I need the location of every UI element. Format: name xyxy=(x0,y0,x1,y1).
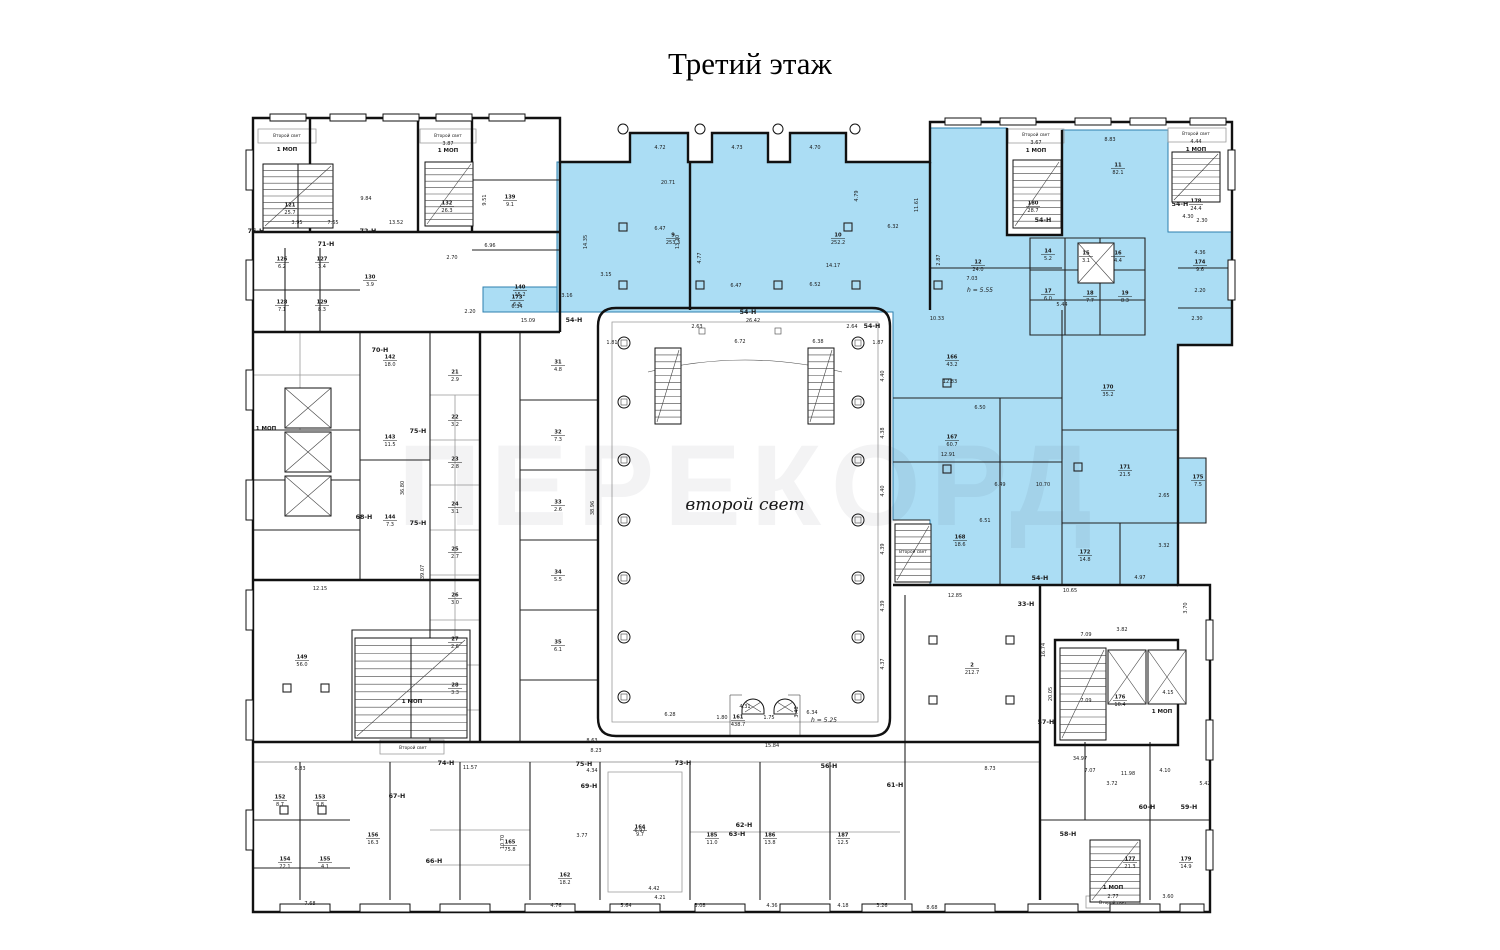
section-label: 74-Н xyxy=(438,760,455,767)
dimension-label: 2.77 xyxy=(1107,894,1118,900)
room-area: 5.2 xyxy=(1044,256,1052,262)
window-tick xyxy=(1228,150,1235,190)
service-label: 1 МОП xyxy=(402,699,423,705)
dimension-label: 4.70 xyxy=(809,145,820,151)
room-number: 22 xyxy=(451,415,459,421)
floor-plan-drawing: 4.724.734.7020.716.476.476.526.3214.174.… xyxy=(0,0,1500,950)
room-number: 15 xyxy=(1082,251,1090,257)
section-label: 69-Н xyxy=(581,783,598,790)
room-number: 154 xyxy=(280,857,291,863)
section-label: 66-Н xyxy=(426,858,443,865)
room-area: 24.4 xyxy=(1190,206,1201,212)
dimension-label: 4.31 xyxy=(739,704,750,710)
dimension-label: 3.77 xyxy=(576,833,587,839)
window-tick xyxy=(1206,620,1213,660)
room-area: 4.1 xyxy=(321,864,329,870)
dimension-label: 3.48 xyxy=(794,706,800,717)
window-tick xyxy=(1228,260,1235,300)
service-label: Второй свет xyxy=(1022,131,1050,138)
room-number: 16 xyxy=(1114,251,1122,257)
room-number: 149 xyxy=(297,655,308,661)
section-label: 58-Н xyxy=(1060,831,1077,838)
dimension-label: 11.61 xyxy=(914,198,920,212)
window-tick xyxy=(610,904,660,912)
dimension-label: 4.76 xyxy=(550,903,561,909)
room-number: 174 xyxy=(1195,260,1206,266)
dimension-label: 8.23 xyxy=(590,748,601,754)
window-tick xyxy=(1075,118,1111,125)
dimension-label: 8.63 xyxy=(586,738,597,744)
atrium-column xyxy=(852,572,864,584)
room-area: 7.7 xyxy=(1086,298,1094,304)
dimension-label: 3.70 xyxy=(1183,602,1189,613)
room-area: 3.1 xyxy=(1082,258,1090,264)
dimension-label: 4.10 xyxy=(1159,768,1170,774)
dimension-label: 4.79 xyxy=(854,190,860,201)
window-tick xyxy=(1206,830,1213,870)
column xyxy=(1006,636,1014,644)
room-number: 127 xyxy=(317,257,328,263)
dimension-label: 11.98 xyxy=(1121,771,1135,777)
room-area: 25.7 xyxy=(284,210,295,216)
section-label: 59-Н xyxy=(1181,804,1198,811)
section-label: 70-Н xyxy=(372,347,389,354)
room-area: 3.4 xyxy=(318,264,326,270)
room-number: 27 xyxy=(451,637,459,643)
atrium-column xyxy=(852,691,864,703)
service-label: 1 МОП xyxy=(256,426,277,432)
floor-plan-page: Третий этаж 4.724.734.7020.716.476.476.5… xyxy=(0,0,1500,950)
dimension-label: 4.72 xyxy=(654,145,665,151)
room-number: 129 xyxy=(317,300,328,306)
section-label: 57-Н xyxy=(1038,719,1055,726)
window-tick xyxy=(436,114,472,121)
dimension-label: 15.09 xyxy=(521,318,535,324)
room-number: 34 xyxy=(554,570,562,576)
dimension-label: 16.74 xyxy=(1041,643,1047,657)
dimension-label: 4.97 xyxy=(1134,575,1145,581)
window-tick xyxy=(360,904,410,912)
section-label: 54-Н xyxy=(740,309,757,316)
room-area: 15.2 xyxy=(514,292,525,298)
dimension-label: 2.64 xyxy=(846,324,857,330)
dimension-label: 4.15 xyxy=(1162,690,1173,696)
room-number: 165 xyxy=(505,840,516,846)
room-area: 11.5 xyxy=(384,442,395,448)
window-tick xyxy=(440,904,490,912)
section-label: 54-Н xyxy=(566,317,583,324)
dimension-label: 4.30 xyxy=(1182,214,1193,220)
room-area: 6.0 xyxy=(1044,296,1052,302)
dimension-label: 20.71 xyxy=(661,180,675,186)
atrium-column xyxy=(618,631,630,643)
room-area: 438.7 xyxy=(731,722,745,728)
room-number: 139 xyxy=(505,195,516,201)
section-label: 33-Н xyxy=(1018,601,1035,608)
room-number: 144 xyxy=(385,515,396,521)
service-label: Второй свет xyxy=(434,132,462,139)
room-number: 171 xyxy=(1120,465,1131,471)
dimension-label: 7.09 xyxy=(1080,632,1091,638)
dimension-label: 3.95 xyxy=(291,220,302,226)
room-area: 9.7 xyxy=(636,832,644,838)
dimension-label: 3.08 xyxy=(694,903,705,909)
room-area: 9.6 xyxy=(1196,267,1204,273)
room-number: 161 xyxy=(733,715,744,721)
dimension-label: 4.42 xyxy=(648,886,659,892)
window-tick xyxy=(246,150,253,190)
room-number: 10 xyxy=(834,233,842,239)
dimension-label: 5.42 xyxy=(1199,781,1210,787)
section-label: 54-Н xyxy=(1032,575,1049,582)
room-number: 142 xyxy=(385,355,396,361)
window-tick xyxy=(246,700,253,740)
service-label: Второй свет xyxy=(1182,130,1210,137)
window-tick xyxy=(1180,904,1204,912)
room-number: 35 xyxy=(554,640,562,646)
room-area: 9.1 xyxy=(506,202,514,208)
dimension-label: 3.16 xyxy=(561,293,572,299)
dimension-label: 6.50 xyxy=(974,405,985,411)
room-number: 180 xyxy=(1028,201,1039,207)
dimension-label: 4.21 xyxy=(654,895,665,901)
watermark-text: ПЕРЕКОРД xyxy=(398,422,1102,550)
window-tick xyxy=(246,590,253,630)
atrium-label: h = 5.25 xyxy=(811,717,837,724)
dimension-label: 9.84 xyxy=(360,196,371,202)
room-area: 35.2 xyxy=(1102,392,1113,398)
dimension-label: 6.72 xyxy=(734,339,745,345)
dimension-label: 3.60 xyxy=(1162,894,1173,900)
room-area: 24.0 xyxy=(972,267,983,273)
room-area: 14.9 xyxy=(1180,864,1191,870)
room-number: 31 xyxy=(554,360,562,366)
dimension-label: 14.17 xyxy=(826,263,840,269)
room-area: 2.7 xyxy=(451,554,459,560)
service-label: 1 МОП xyxy=(1103,885,1124,891)
dimension-label: 2.30 xyxy=(1191,316,1202,322)
dimension-label: 7.03 xyxy=(966,276,977,282)
pilaster xyxy=(775,328,781,334)
window-tick xyxy=(270,114,306,121)
service-label: 1 МОП xyxy=(1152,709,1173,715)
room-area: 4.8 xyxy=(554,367,562,373)
room-area: 4.4 xyxy=(1114,258,1122,264)
dimension-label: 6.47 xyxy=(654,226,665,232)
section-label: 73-Н xyxy=(675,760,692,767)
dimension-label: 12.15 xyxy=(313,586,327,592)
room-number: 9 xyxy=(671,233,675,239)
dimension-label: 3.26 xyxy=(876,903,887,909)
atrium-column xyxy=(618,396,630,408)
dimension-label: 4.73 xyxy=(731,145,742,151)
dimension-label: 5.44 xyxy=(1056,302,1067,308)
room-number: 14 xyxy=(1044,249,1052,255)
dimension-label: 3.32 xyxy=(1158,543,1169,549)
dimension-label: 4.40 xyxy=(880,370,886,381)
room-area: 16.3 xyxy=(367,840,378,846)
dimension-label: 3.67 xyxy=(1030,140,1041,146)
room-area: 43.2 xyxy=(946,362,957,368)
section-label: 76-Н xyxy=(248,228,265,235)
dimension-label: 2.65 xyxy=(1158,493,1169,499)
dimension-label: 3.82 xyxy=(1116,627,1127,633)
dimension-label: 4.34 xyxy=(586,768,597,774)
room-area: 7.3 xyxy=(386,522,394,528)
dimension-label: 5.64 xyxy=(620,903,631,909)
dimension-label: 3.87 xyxy=(442,141,453,147)
window-tick xyxy=(1190,118,1226,125)
room-number: 162 xyxy=(560,873,571,879)
dimension-label: 2.63 xyxy=(691,324,702,330)
room-number: 185 xyxy=(707,833,718,839)
room-area: 6.3 xyxy=(513,302,521,308)
room-area: 28.7 xyxy=(1027,208,1038,214)
room-number: 186 xyxy=(765,833,776,839)
room-area: 7.1 xyxy=(278,307,286,313)
room-area: 13.8 xyxy=(764,840,775,846)
section-label: 63-Н xyxy=(729,831,746,838)
dimension-label: 6.28 xyxy=(664,712,675,718)
window-tick xyxy=(945,118,981,125)
window-tick xyxy=(246,480,253,520)
room-number: 132 xyxy=(442,201,453,207)
atrium-column xyxy=(618,337,630,349)
room-area: 75.8 xyxy=(504,847,515,853)
room-area: 3.9 xyxy=(366,282,374,288)
room-number: 178 xyxy=(1191,199,1202,205)
dimension-label: 4.18 xyxy=(837,903,848,909)
room-area: 56.0 xyxy=(296,662,307,668)
dimension-label: 6.32 xyxy=(887,224,898,230)
room-number: 179 xyxy=(1181,857,1192,863)
section-label: 75-Н xyxy=(576,761,593,768)
service-label: 1 МОП xyxy=(277,147,298,153)
room-area: 8.8 xyxy=(316,802,324,808)
room-number: 187 xyxy=(838,833,849,839)
survey-point xyxy=(695,124,705,134)
column xyxy=(1006,696,1014,704)
room-number: 126 xyxy=(277,257,288,263)
room-area: 11.0 xyxy=(706,840,717,846)
dimension-label: 39.07 xyxy=(420,565,426,579)
service-label: 1 МОП xyxy=(1186,147,1207,153)
section-label: 54-Н xyxy=(1172,201,1189,208)
room-number: 166 xyxy=(947,355,958,361)
dimension-label: 7.07 xyxy=(1084,768,1095,774)
section-label: 60-Н xyxy=(1139,804,1156,811)
section-label: 56-Н xyxy=(821,763,838,770)
window-tick xyxy=(246,260,253,300)
room-area: 2.6 xyxy=(451,644,459,650)
section-label: 71-Н xyxy=(318,241,335,248)
service-label: 1 МОП xyxy=(438,148,459,154)
dimension-label: 15.84 xyxy=(765,743,779,749)
dimension-label: 1.81 xyxy=(606,340,617,346)
dimension-label: 6.47 xyxy=(730,283,741,289)
dimension-label: 4.77 xyxy=(697,252,703,263)
dimension-label: 14.35 xyxy=(583,235,589,249)
room-area: 26.3 xyxy=(441,208,452,214)
dimension-label: 4.36 xyxy=(766,903,777,909)
dimension-label: 7.65 xyxy=(327,220,338,226)
dimension-label: 1.80 xyxy=(716,715,727,721)
dimension-label: 1.87 xyxy=(872,340,883,346)
window-tick xyxy=(383,114,419,121)
dimension-label: 2.87 xyxy=(936,254,942,265)
room-area: 10.4 xyxy=(1114,702,1125,708)
dimension-label: 8.68 xyxy=(926,905,937,911)
dimension-label: 34.97 xyxy=(1073,756,1087,762)
survey-point xyxy=(773,124,783,134)
dimension-label: 26.42 xyxy=(746,318,760,324)
dimension-label: 6.38 xyxy=(812,339,823,345)
room-number: 130 xyxy=(365,275,376,281)
dimension-label: 3.72 xyxy=(1106,781,1117,787)
room-number: 170 xyxy=(1103,385,1114,391)
dimension-label: 10.65 xyxy=(1063,588,1077,594)
room-area: 8.7 xyxy=(276,802,284,808)
room-area: 3.0 xyxy=(451,600,459,606)
service-label: Второй свет xyxy=(1099,899,1127,906)
room-area: 14.8 xyxy=(1079,557,1090,563)
room-number: 176 xyxy=(1115,695,1126,701)
room-number: 18 xyxy=(1086,291,1094,297)
service-label: 1 МОП xyxy=(1026,148,1047,154)
room-number: 143 xyxy=(385,435,396,441)
dimension-label: 6.96 xyxy=(484,243,495,249)
room-area: 22.1 xyxy=(279,864,290,870)
dimension-label: 2.20 xyxy=(464,309,475,315)
column xyxy=(321,684,329,692)
dimension-label: 6.34 xyxy=(806,710,817,716)
room-area: 5.5 xyxy=(554,577,562,583)
window-tick xyxy=(780,904,830,912)
room-area: 21.3 xyxy=(1124,864,1135,870)
room-area: 212.7 xyxy=(965,670,979,676)
room-number: 21 xyxy=(451,370,459,376)
column xyxy=(929,636,937,644)
service-label: Второй свет xyxy=(273,132,301,139)
survey-point xyxy=(850,124,860,134)
room-area: 253.3 xyxy=(666,240,680,246)
atrium-column xyxy=(852,631,864,643)
room-number: 156 xyxy=(368,833,379,839)
dimension-label: 4.36 xyxy=(1194,250,1205,256)
room-area: 21.5 xyxy=(1119,472,1130,478)
dimension-label: 11.57 xyxy=(463,765,477,771)
atrium-column xyxy=(852,396,864,408)
dimension-label: 13.52 xyxy=(389,220,403,226)
dimension-label: 3.15 xyxy=(600,272,611,278)
dimension-label: 4.37 xyxy=(880,658,886,669)
room-area: 82.1 xyxy=(1112,170,1123,176)
dimension-label: 6.52 xyxy=(809,282,820,288)
window-tick xyxy=(1028,904,1078,912)
dimension-label: 2.30 xyxy=(1196,218,1207,224)
room-area: 252.2 xyxy=(831,240,845,246)
dimension-label: 6.83 xyxy=(294,766,305,772)
dimension-label: 4.39 xyxy=(880,600,886,611)
dimension-label: 12.83 xyxy=(943,379,957,385)
room-number: 140 xyxy=(515,285,526,291)
section-label: 61-Н xyxy=(887,782,904,789)
room-area: 8.3 xyxy=(318,307,326,313)
room-area: 2.9 xyxy=(451,377,459,383)
dimension-label: 8.73 xyxy=(984,766,995,772)
room-number: 155 xyxy=(320,857,331,863)
column xyxy=(283,684,291,692)
window-tick xyxy=(489,114,525,121)
dimension-label: 8.83 xyxy=(1104,137,1115,143)
window-tick xyxy=(246,810,253,850)
window-tick xyxy=(246,370,253,410)
room-area: 7.5 xyxy=(1194,482,1202,488)
room-number: 164 xyxy=(635,825,646,831)
dimension-label: 2.20 xyxy=(1194,288,1205,294)
room-area: 3.3 xyxy=(451,690,459,696)
room-area: 8.3 xyxy=(1121,298,1129,304)
room-number: 128 xyxy=(277,300,288,306)
room-number: 26 xyxy=(451,593,459,599)
room-area: 18.0 xyxy=(384,362,395,368)
room-number: 19 xyxy=(1121,291,1129,297)
service-label: Второй свет xyxy=(399,744,427,751)
room-area: 18.2 xyxy=(559,880,570,886)
room-number: 17 xyxy=(1044,289,1052,295)
section-label: 72-Н xyxy=(360,228,377,235)
section-label: 54-Н xyxy=(864,323,881,330)
window-tick xyxy=(1000,118,1036,125)
window-tick xyxy=(330,114,366,121)
window-tick xyxy=(1130,118,1166,125)
dimension-label: 12.85 xyxy=(948,593,962,599)
dimension-label: 10.33 xyxy=(930,316,944,322)
room-number: 172 xyxy=(1080,550,1091,556)
room-number: 177 xyxy=(1125,857,1136,863)
room-area: 12.5 xyxy=(837,840,848,846)
section-label: 54-Н xyxy=(1035,217,1052,224)
room-number: 12 xyxy=(974,260,982,266)
dimension-label: 20.05 xyxy=(1048,687,1054,701)
room-number: 11 xyxy=(1114,163,1122,169)
room-number: 28 xyxy=(451,683,459,689)
dimension-label: 1.75 xyxy=(763,715,774,721)
atrium-column xyxy=(618,691,630,703)
dimension-label: 9.51 xyxy=(482,194,488,205)
dimension-label: 7.09 xyxy=(1080,698,1091,704)
section-label: 67-Н xyxy=(389,793,406,800)
column xyxy=(929,696,937,704)
atrium-column xyxy=(618,572,630,584)
window-tick xyxy=(1206,720,1213,760)
dimension-label: 2.70 xyxy=(446,255,457,261)
room-number: 152 xyxy=(275,795,286,801)
atrium-label: h = 5.55 xyxy=(967,287,993,294)
atrium-column xyxy=(852,337,864,349)
section-label: 62-Н xyxy=(736,822,753,829)
room-area: 6.1 xyxy=(554,647,562,653)
window-tick xyxy=(945,904,995,912)
room-area: 6.2 xyxy=(278,264,286,270)
dimension-label: 4.44 xyxy=(1190,139,1201,145)
room-number: 2 xyxy=(970,663,974,669)
dimension-label: 7.68 xyxy=(304,901,315,907)
section-label: 68-Н xyxy=(356,514,373,521)
highlighted-zone xyxy=(1178,458,1206,523)
survey-point xyxy=(618,124,628,134)
room-number: 121 xyxy=(285,203,296,209)
